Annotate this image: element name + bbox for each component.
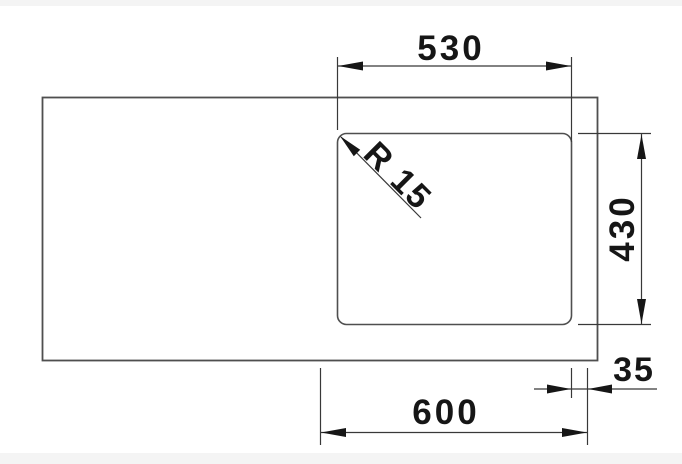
dimension-labels: 530 430 600 35 R 15 <box>356 29 655 432</box>
arrow-430-bottom <box>637 299 646 324</box>
arrow-530-left <box>338 62 363 71</box>
dimension-label-edge-offset: 35 <box>613 351 655 389</box>
arrow-35-right <box>588 385 612 394</box>
sink-outline <box>43 98 598 361</box>
arrow-600-right <box>562 428 587 437</box>
arrow-600-left <box>321 428 346 437</box>
dimension-label-bowl-depth: 430 <box>603 194 642 261</box>
drawing-canvas: 530 430 600 35 R 15 <box>0 0 682 464</box>
dimension-label-cabinet-width: 600 <box>412 393 479 432</box>
dimension-drawing: 530 430 600 35 R 15 <box>0 0 682 464</box>
bottom-frame-bar <box>0 453 682 464</box>
arrow-530-right <box>546 62 571 71</box>
dimension-label-corner-radius: R 15 <box>356 135 439 218</box>
arrow-430-top <box>637 135 646 160</box>
arrow-35-left <box>547 385 571 394</box>
top-frame-bar <box>0 0 682 6</box>
object-outlines <box>43 98 598 361</box>
dimension-label-bowl-width: 530 <box>417 29 484 68</box>
